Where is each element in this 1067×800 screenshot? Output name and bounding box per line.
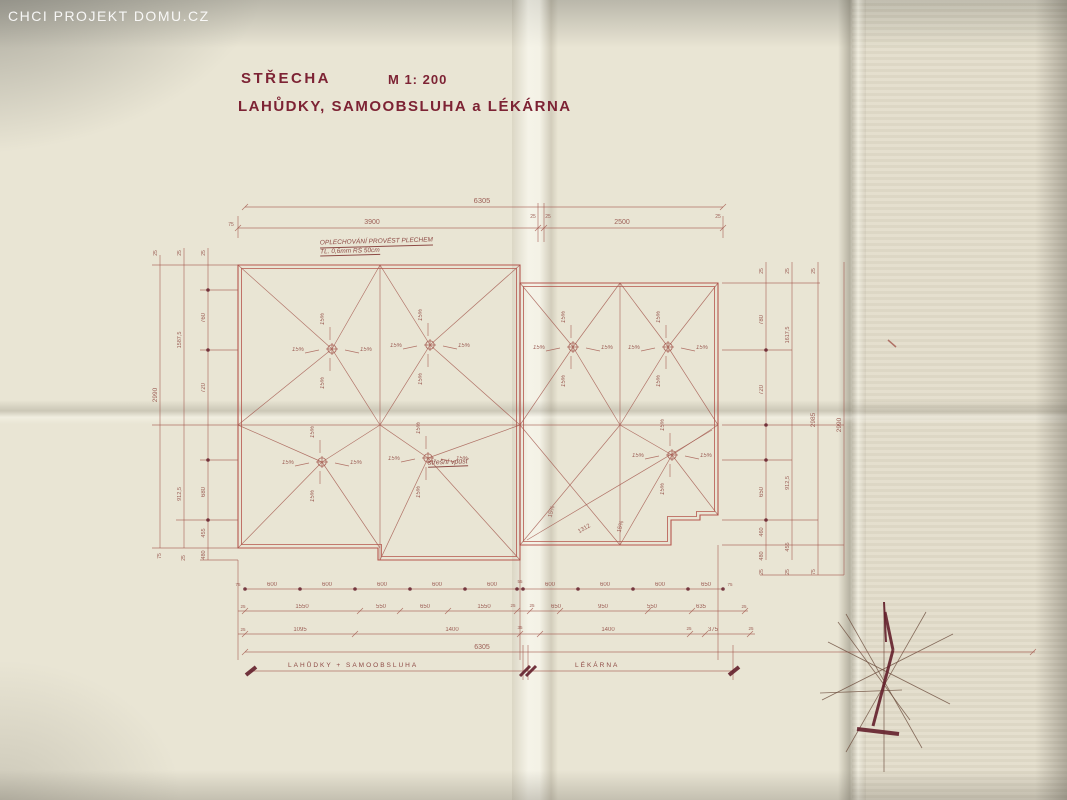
- dimension-label: 680: [201, 486, 207, 497]
- dimension-label: 2990: [836, 417, 843, 432]
- dimension-label: 35: [517, 625, 523, 630]
- plan-line: [332, 265, 380, 349]
- dimension-label: 1400: [445, 627, 459, 633]
- slope-arrow: [345, 350, 359, 353]
- dimension-label: 600: [545, 582, 556, 588]
- slope-arrow: [401, 459, 415, 462]
- dimension-dot: [463, 587, 467, 591]
- slope-label: 15%: [292, 347, 305, 353]
- watermark: CHCI PROJEKT DOMU.CZ: [8, 8, 210, 24]
- dimension-label: 600: [322, 582, 333, 588]
- dimension-label: 25: [529, 603, 535, 608]
- slope-label: 15%: [320, 376, 326, 389]
- dimension-dot: [206, 458, 210, 462]
- slope-arrow: [546, 348, 560, 351]
- dimension-label: 6305: [474, 196, 491, 205]
- dimension-label: 375: [708, 627, 719, 633]
- dimension-dot: [206, 288, 210, 292]
- plan-line: [238, 462, 322, 548]
- slope-label: 15%: [360, 347, 373, 353]
- slope-label: 15%: [601, 345, 614, 351]
- slope-label: 15%: [656, 374, 662, 387]
- dimension-dot: [353, 587, 357, 591]
- dimension-label: 760: [201, 312, 207, 323]
- slope-label: 15%: [533, 345, 546, 351]
- slope-arrow: [305, 350, 319, 353]
- dimension-label: 25: [759, 569, 765, 575]
- dimension-label: 3900: [364, 219, 380, 226]
- dimension-label: 25: [748, 626, 754, 631]
- plan-line: [668, 347, 718, 425]
- plan-line: [322, 425, 380, 462]
- dimension-label: 25: [181, 555, 187, 561]
- dimension-label: 1617,5: [785, 327, 791, 344]
- dimension-label: 912,5: [177, 487, 183, 501]
- dimension-label: 25: [240, 604, 246, 609]
- slope-label: 15%: [561, 310, 567, 323]
- dimension-dot: [576, 587, 580, 591]
- plan-line: [322, 462, 380, 548]
- dimension-label: 25: [510, 603, 516, 608]
- dimension-label: 1587,5: [177, 332, 183, 349]
- roof-outline: [242, 269, 517, 557]
- slope-label: 15%: [390, 343, 403, 349]
- dimension-label: 720: [201, 382, 207, 393]
- slope-label: 15%: [388, 456, 401, 462]
- thick-mark: [873, 650, 893, 726]
- roof-drain-annotation: střešní vpusť: [428, 458, 468, 467]
- dimension-label: 600: [655, 582, 666, 588]
- plan-line: [828, 642, 950, 704]
- dimension-label: 25: [686, 626, 692, 631]
- dimension-label: 912,5: [785, 476, 791, 490]
- thick-mark: [857, 729, 899, 734]
- dimension-label: 75: [228, 222, 234, 228]
- dimension-label: 720: [759, 384, 765, 395]
- dimension-label: 25: [240, 627, 246, 632]
- slope-label: 15%: [418, 308, 424, 321]
- slope-label: 15%: [656, 310, 662, 323]
- dimension-dot: [408, 587, 412, 591]
- dimension-label: 15%: [548, 505, 557, 519]
- plan-line: [888, 340, 896, 347]
- slope-label: 15%: [660, 482, 666, 495]
- slope-label: 15%: [696, 345, 709, 351]
- dimension-dot: [764, 458, 768, 462]
- dimension-label: 25: [715, 214, 721, 220]
- plan-line: [838, 622, 910, 720]
- dimension-label: 455: [201, 528, 207, 537]
- dimension-dot: [521, 587, 525, 591]
- slope-arrow: [403, 346, 417, 349]
- dimension-label: 75: [235, 582, 241, 587]
- roof-outline: [238, 265, 520, 560]
- dimension-dot: [764, 518, 768, 522]
- dimension-dot: [686, 587, 690, 591]
- slope-label: 15%: [416, 421, 422, 434]
- dimension-label: 25: [759, 268, 765, 274]
- dimension-label: 650: [759, 486, 765, 497]
- plan-line: [428, 458, 520, 560]
- photographed-roof-plan: 15%15%15%15%15%15%15%15%15%15%15%15%15%1…: [0, 0, 1067, 800]
- dimension-dot: [515, 587, 519, 591]
- dimension-dot: [206, 518, 210, 522]
- slope-label: 15%: [320, 312, 326, 325]
- dimension-label: 650: [420, 604, 431, 610]
- dimension-label: 25: [785, 569, 791, 575]
- dimension-label: 1550: [295, 604, 309, 610]
- slope-label: 15%: [418, 372, 424, 385]
- slope-arrow: [681, 348, 695, 351]
- slope-arrow: [586, 348, 600, 351]
- plan-line: [620, 455, 672, 545]
- plan-line: [430, 265, 520, 345]
- plan-line: [573, 347, 620, 425]
- plan-line: [238, 349, 332, 425]
- plan-line: [573, 283, 620, 347]
- dimension-dot: [206, 348, 210, 352]
- drawing-scale: M 1: 200: [388, 72, 447, 87]
- dimension-label: 600: [600, 582, 611, 588]
- plan-line: [428, 425, 520, 458]
- slope-arrow: [641, 348, 655, 351]
- dimension-label: 25: [177, 250, 183, 256]
- drawing-title: STŘECHA: [241, 70, 331, 87]
- dimension-dot: [764, 348, 768, 352]
- plan-line: [332, 349, 380, 425]
- slope-label: 15%: [632, 453, 645, 459]
- slope-label: 15%: [628, 345, 641, 351]
- dimension-label: 600: [487, 582, 498, 588]
- dimension-label: 460: [759, 527, 765, 536]
- dimension-label: 25: [545, 214, 551, 220]
- bracket-label-lekarna: LÉKÁRNA: [575, 662, 619, 669]
- dimension-label: 25: [811, 268, 817, 274]
- slope-arrow: [685, 456, 699, 459]
- slope-label: 15%: [310, 489, 316, 502]
- dimension-dot: [243, 587, 247, 591]
- dimension-label: 75: [727, 582, 733, 587]
- dimension-label: 600: [432, 582, 443, 588]
- dimension-label: 550: [647, 604, 658, 610]
- bracket-label-lahudky-samoobsluha: LAHŮDKY + SAMOOBSLUHA: [288, 662, 418, 669]
- flashing-annotation: OPLECHOVÁNÍ PROVÉST PLECHEM TL. 0,6mm RŠ…: [320, 237, 433, 257]
- plan-line: [672, 455, 718, 515]
- plan-svg: 15%15%15%15%15%15%15%15%15%15%15%15%15%1…: [0, 0, 1067, 800]
- dimension-dot: [764, 423, 768, 427]
- slope-arrow: [335, 463, 349, 466]
- slope-label: 15%: [310, 425, 316, 438]
- plan-line: [238, 265, 332, 349]
- flashing-annotation-line2: TL. 0,6mm RŠ 50cm: [320, 246, 380, 256]
- drawing-subtitle: LAHŮDKY, SAMOOBSLUHA a LÉKÁRNA: [238, 98, 572, 115]
- slope-label: 15%: [282, 460, 295, 466]
- slope-label: 15%: [350, 460, 363, 466]
- slope-label: 15%: [561, 374, 567, 387]
- dimension-label: 780: [759, 314, 765, 325]
- dimension-label: 550: [376, 604, 387, 610]
- roof-outline: [524, 287, 715, 542]
- dimension-label: 480: [759, 551, 765, 560]
- dimension-label: 15%: [617, 520, 626, 534]
- slope-label: 15%: [660, 418, 666, 431]
- dimension-label: 600: [267, 582, 278, 588]
- dimension-label: 6305: [474, 644, 490, 651]
- dimension-label: 650: [701, 582, 712, 588]
- dimension-label: 1400: [601, 627, 615, 633]
- dimension-label: 25: [530, 214, 536, 220]
- dimension-label: 2500: [614, 219, 630, 226]
- dimension-dot: [631, 587, 635, 591]
- dimension-dot: [721, 587, 725, 591]
- plan-line: [380, 265, 430, 345]
- plan-line: [430, 345, 520, 425]
- dimension-label: 25: [201, 250, 207, 256]
- dimension-label: 480: [201, 550, 207, 559]
- dimension-label: 75: [811, 569, 817, 575]
- dimension-label: 25: [153, 250, 159, 256]
- dimension-label: 25: [785, 268, 791, 274]
- slope-label: 15%: [458, 343, 471, 349]
- plan-line: [380, 458, 428, 560]
- dimension-label: 75: [157, 553, 163, 559]
- slope-arrow: [443, 346, 457, 349]
- dimension-label: 950: [598, 604, 609, 610]
- dimension-label: 1550: [477, 604, 491, 610]
- slope-arrow: [645, 456, 659, 459]
- dimension-label: 55: [517, 579, 523, 584]
- slope-label: 15%: [416, 485, 422, 498]
- slope-label: 15%: [700, 453, 713, 459]
- dimension-label: 2985: [810, 412, 817, 427]
- dimension-label: 455: [785, 542, 791, 551]
- slope-arrow: [295, 463, 309, 466]
- dimension-label: 1312: [577, 523, 592, 535]
- dimension-label: 2990: [152, 387, 159, 402]
- dimension-label: 1095: [293, 627, 307, 633]
- dimension-label: 600: [377, 582, 388, 588]
- plan-line: [668, 283, 718, 347]
- dimension-label: 25: [741, 604, 747, 609]
- dimension-label: 635: [696, 604, 707, 610]
- dimension-dot: [298, 587, 302, 591]
- dimension-label: 650: [551, 604, 562, 610]
